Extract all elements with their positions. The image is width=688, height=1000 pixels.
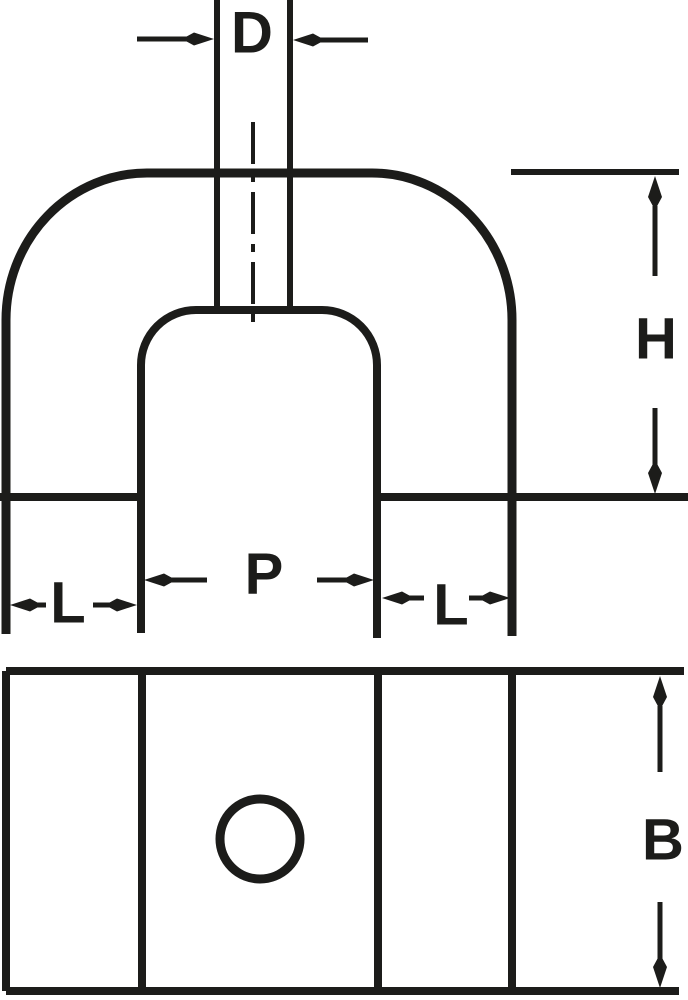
bottom-view: B [6,671,684,991]
dimension-h: H [511,172,679,494]
dimension-l-right: L [382,573,510,638]
b-arrow-down-icon [653,954,667,988]
h-arrow-down-icon [648,460,662,494]
dimension-l-left: L [10,571,137,636]
dimension-b: B [642,676,684,988]
d-arrow-right-icon [182,33,214,46]
l-right-arrow-right-icon [478,592,510,605]
dim-label-b: B [642,808,684,873]
dimension-d: D [137,1,368,66]
h-arrow-up-icon [648,176,662,210]
dim-label-l-left: L [50,571,85,636]
dim-label-d: D [231,1,273,66]
dimension-p: P [144,542,374,607]
d-arrow-left-icon [293,34,325,47]
front-view: D H P [0,0,688,638]
dim-label-l-right: L [433,573,468,638]
technical-drawing-canvas: D H P [0,0,688,1000]
p-arrow-right-icon [342,574,374,587]
dim-label-h: H [635,307,677,372]
b-arrow-up-icon [653,676,667,710]
dim-label-p: P [245,542,284,607]
mounting-hole [220,799,300,879]
magnet-dimension-drawing: D H P [0,0,688,1000]
l-left-arrow-right-icon [105,599,137,612]
